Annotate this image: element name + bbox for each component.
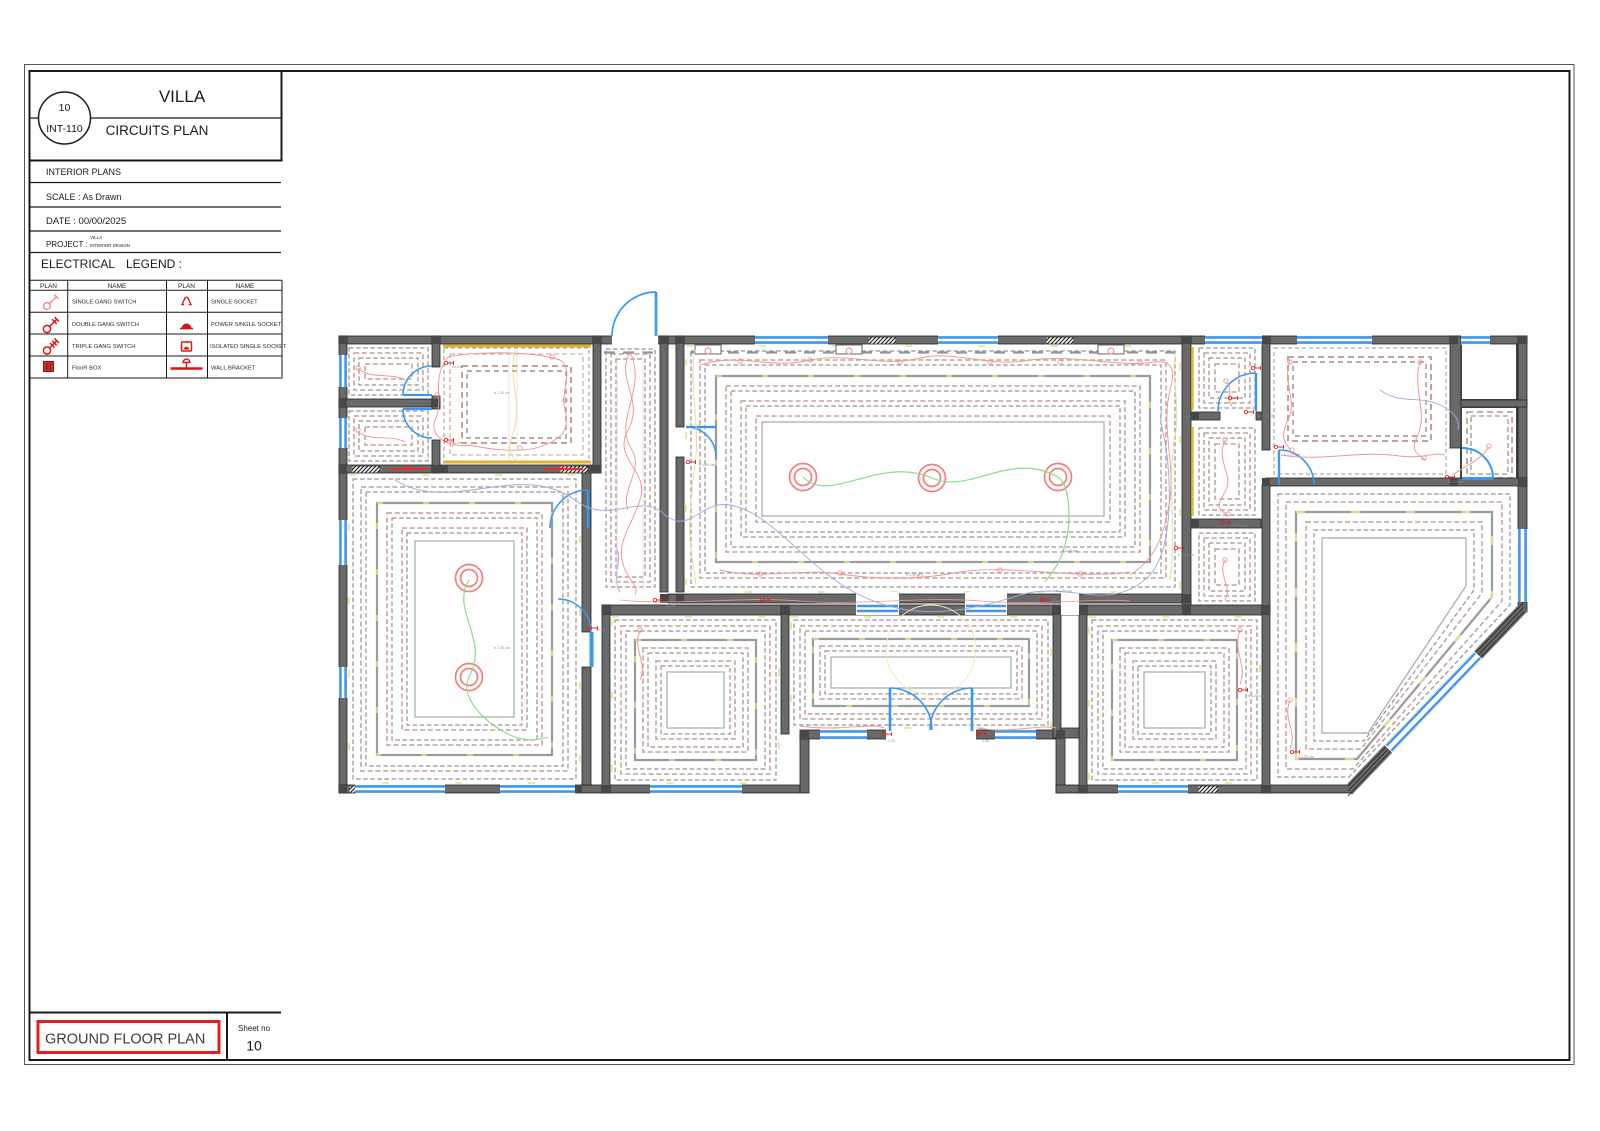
svg-text:h 1.20 cm: h 1.20 cm <box>1178 553 1194 557</box>
svg-text:DOUBLE GANG SWITCH: DOUBLE GANG SWITCH <box>72 322 139 328</box>
svg-text:VILLA: VILLA <box>90 235 102 240</box>
svg-text:h 1.20 cm: h 1.20 cm <box>1284 453 1300 457</box>
svg-text:h 3.10 m: h 3.10 m <box>906 573 920 577</box>
svg-text:h 1.20 cm: h 1.20 cm <box>494 646 510 650</box>
svg-text:h1.20: h1.20 <box>452 365 461 369</box>
svg-text:h1.20: h1.20 <box>666 604 675 608</box>
svg-text:GROUND FLOOR PLAN: GROUND FLOOR PLAN <box>45 1032 205 1048</box>
svg-text:1.20: 1.20 <box>982 739 989 743</box>
svg-text:INTERIOR DESIGN: INTERIOR DESIGN <box>90 243 130 248</box>
svg-text:h 1.20 cm: h 1.20 cm <box>1448 480 1464 484</box>
svg-text:TRIPLE GANG SWITCH: TRIPLE GANG SWITCH <box>72 344 135 350</box>
svg-text:ISOLATED SINGLE SOCKET: ISOLATED SINGLE SOCKET <box>210 344 287 350</box>
svg-text:VILLA: VILLA <box>159 87 206 106</box>
svg-text:ELECTRICAL: ELECTRICAL <box>41 257 115 271</box>
svg-text:WALL BRACKET: WALL BRACKET <box>211 366 256 372</box>
svg-text:h 1.20 cm: h 1.20 cm <box>494 391 510 395</box>
svg-text:INT-110: INT-110 <box>46 123 83 135</box>
svg-text:LEGEND :: LEGEND : <box>126 257 182 271</box>
svg-text:POWER SINGLE SOCKET: POWER SINGLE SOCKET <box>211 322 282 328</box>
svg-text:DATE : 00/00/2025: DATE : 00/00/2025 <box>46 216 126 227</box>
svg-text:1.20: 1.20 <box>888 739 895 743</box>
svg-text:h 1.20 cm: h 1.20 cm <box>1259 414 1275 418</box>
svg-text:PLAN: PLAN <box>178 283 195 290</box>
svg-text:h 1.20 cm: h 1.20 cm <box>699 463 715 467</box>
svg-text:10: 10 <box>59 102 71 114</box>
svg-text:SINGLE SOCKET: SINGLE SOCKET <box>211 300 258 306</box>
svg-text:h 1.20 cm: h 1.20 cm <box>1232 524 1248 528</box>
svg-text:SCALE : As Drawn: SCALE : As Drawn <box>46 192 122 202</box>
svg-text:h 1.20 cm: h 1.20 cm <box>1298 755 1314 759</box>
svg-text:Sheet no: Sheet no <box>238 1024 271 1033</box>
svg-text:h 0.40 cm: h 0.40 cm <box>1062 549 1078 553</box>
svg-text:CIRCUITS PLAN: CIRCUITS PLAN <box>106 123 209 138</box>
svg-text:PLAN: PLAN <box>40 283 57 290</box>
svg-text:h 1.20 cm: h 1.20 cm <box>1056 589 1072 593</box>
svg-text:INTERIOR PLANS: INTERIOR PLANS <box>46 167 121 177</box>
svg-text:h 1.20 cm: h 1.20 cm <box>1248 694 1264 698</box>
svg-text:NAME: NAME <box>108 283 127 290</box>
svg-text:SINGLE GANG SWITCH: SINGLE GANG SWITCH <box>72 300 136 306</box>
svg-text:FlooR BOX: FlooR BOX <box>72 366 101 372</box>
svg-text:NAME: NAME <box>236 283 255 290</box>
svg-text:PROJECT :: PROJECT : <box>46 240 88 249</box>
svg-text:10: 10 <box>246 1038 262 1054</box>
